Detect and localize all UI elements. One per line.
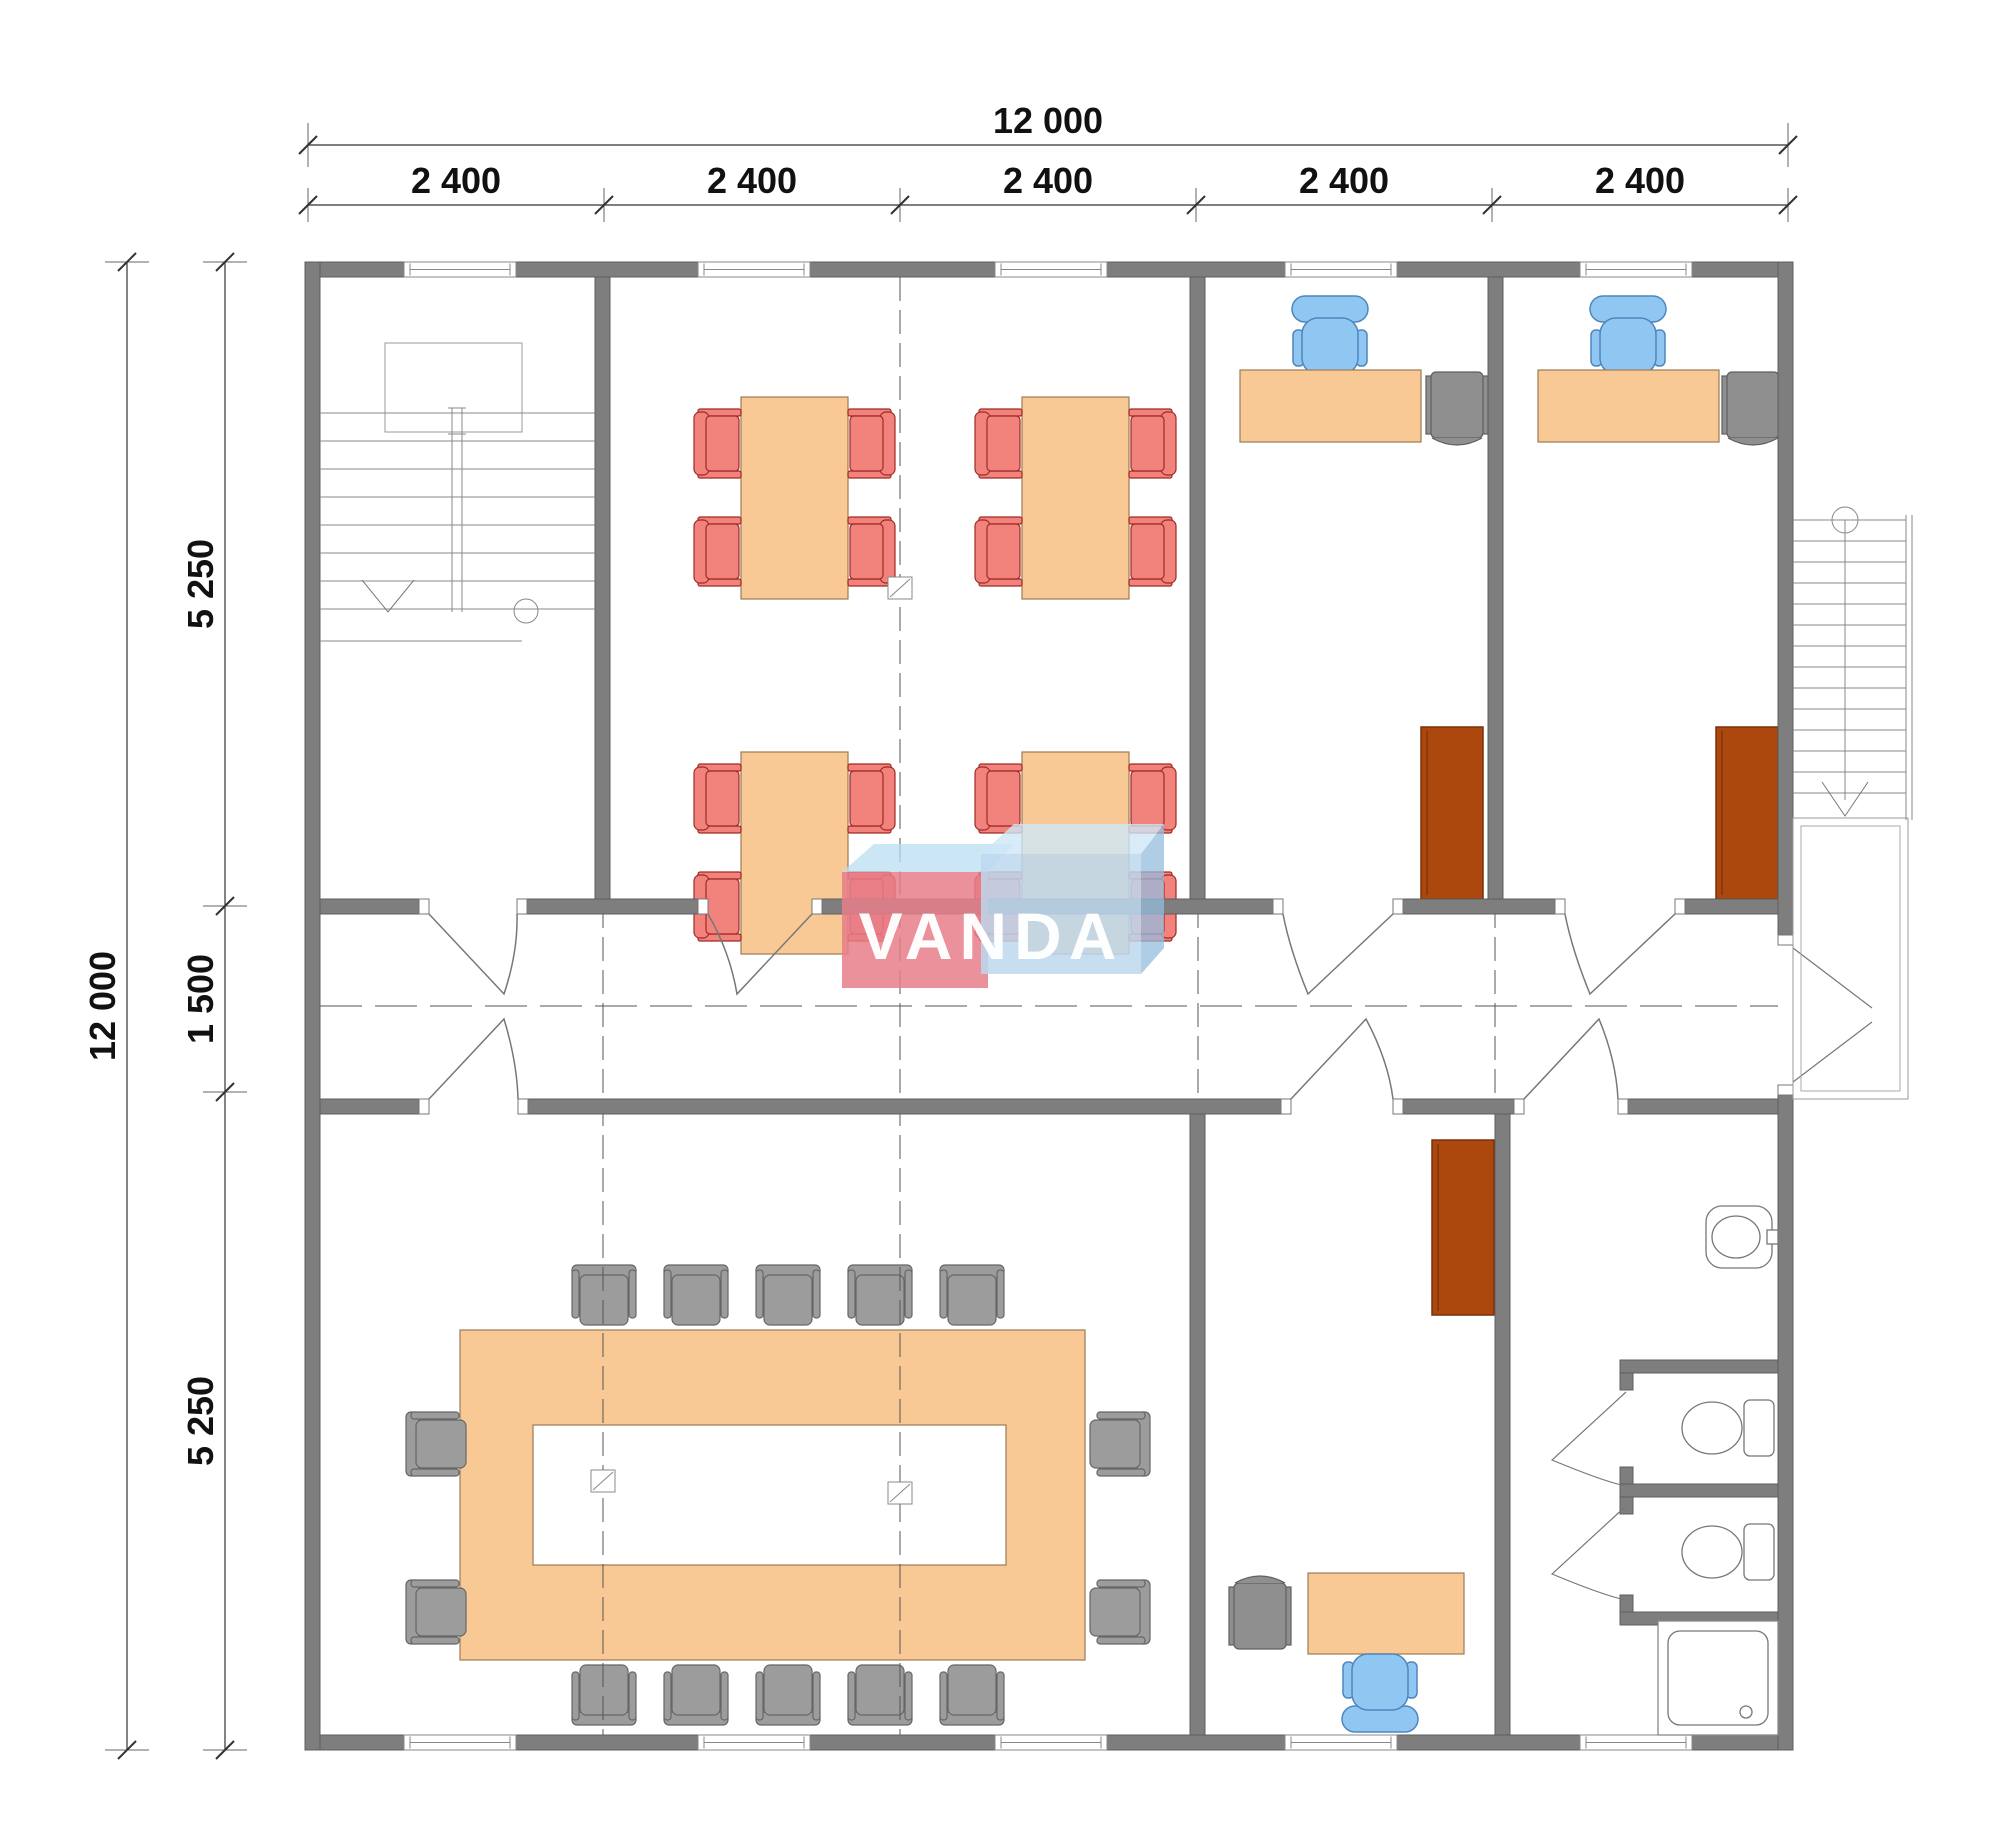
red-chair xyxy=(975,764,1022,833)
gray-guest-chair xyxy=(1426,372,1488,445)
toilet-bowl xyxy=(1682,1526,1742,1578)
window xyxy=(1285,1735,1397,1750)
office-b-furniture xyxy=(1538,296,1784,899)
dim-label-5250: 5 250 xyxy=(180,539,221,629)
shower-drain xyxy=(1740,1706,1752,1718)
sink-faucet xyxy=(1767,1230,1778,1244)
dim-label-1500: 1 500 xyxy=(180,954,221,1044)
gray-chair xyxy=(406,1580,466,1644)
door-stall-2 xyxy=(1552,1506,1626,1600)
corridor-wall xyxy=(320,1099,429,1114)
column-symbol xyxy=(888,577,912,599)
window xyxy=(698,262,810,277)
toilet-bowl xyxy=(1682,1402,1742,1454)
desk xyxy=(1308,1573,1464,1654)
bathroom-fixtures xyxy=(1658,1206,1778,1735)
stall-wall xyxy=(1620,1484,1778,1497)
entrance-landing-inner xyxy=(1801,826,1900,1091)
window xyxy=(698,1735,810,1750)
meeting-table xyxy=(741,397,848,599)
partition-conference-office xyxy=(1190,1114,1205,1735)
partition-office-bathroom xyxy=(1495,1114,1510,1735)
dim-label-2400: 2 400 xyxy=(707,160,797,201)
conference-room-furniture xyxy=(406,1265,1150,1725)
desk xyxy=(1240,370,1421,442)
gray-chair xyxy=(664,1265,728,1325)
gray-chair xyxy=(940,1665,1004,1725)
stair-direction-arrow xyxy=(362,580,414,612)
external-staircase xyxy=(1793,507,1912,1099)
stall-wall-stub xyxy=(1620,1595,1633,1612)
entrance-landing xyxy=(1793,818,1908,1099)
dim-label-2400: 2 400 xyxy=(1299,160,1389,201)
dim-label-2400: 2 400 xyxy=(1595,160,1685,201)
gray-chair xyxy=(1090,1412,1150,1476)
meeting-table xyxy=(1022,397,1129,599)
stair-start-circle xyxy=(514,599,538,623)
dim-label-left-total: 12 000 xyxy=(82,951,123,1061)
partition-officea-officeb xyxy=(1488,277,1503,899)
gray-chair xyxy=(756,1665,820,1725)
wardrobe xyxy=(1432,1140,1494,1315)
door-stair-room xyxy=(429,914,517,994)
door-office-a xyxy=(1283,914,1393,994)
gray-chair xyxy=(1090,1580,1150,1644)
window xyxy=(995,1735,1107,1750)
red-chair xyxy=(975,517,1022,586)
window xyxy=(1580,1735,1692,1750)
red-chair xyxy=(848,409,895,478)
dim-label-top-total: 12 000 xyxy=(993,100,1103,141)
exterior-wall-left xyxy=(305,262,320,1750)
window xyxy=(995,262,1107,277)
red-chair xyxy=(1129,517,1176,586)
bottom-office-furniture xyxy=(1229,1140,1494,1732)
gray-guest-chair xyxy=(1722,372,1784,445)
red-chair xyxy=(694,764,741,833)
gray-armchair xyxy=(1229,1576,1291,1649)
red-chair xyxy=(694,409,741,478)
corridor-wall xyxy=(1393,1099,1524,1114)
toilet-tank xyxy=(1744,1400,1774,1456)
meeting-table xyxy=(741,752,848,954)
stair-landing-outline xyxy=(385,343,522,432)
blue-office-chair xyxy=(1342,1654,1418,1732)
toilet-tank xyxy=(1744,1524,1774,1580)
red-chair xyxy=(975,409,1022,478)
gray-chair xyxy=(848,1665,912,1725)
corridor-wall xyxy=(1393,899,1565,914)
blue-office-chair xyxy=(1590,296,1666,374)
vanda-logo: VANDA xyxy=(842,824,1164,988)
door-office-b xyxy=(1565,914,1675,994)
partition-meeting-officea xyxy=(1190,277,1205,899)
gray-chair xyxy=(572,1265,636,1325)
corridor-wall xyxy=(518,1099,1291,1114)
window xyxy=(404,262,516,277)
corridor-wall xyxy=(320,899,429,914)
stall-wall-stub xyxy=(1620,1467,1633,1484)
blue-office-chair xyxy=(1292,296,1368,374)
door-stall-1 xyxy=(1552,1392,1626,1486)
column-symbol xyxy=(591,1470,615,1492)
red-chair xyxy=(1129,764,1176,833)
conference-table-opening xyxy=(533,1425,1006,1565)
red-chair xyxy=(848,764,895,833)
door-exterior xyxy=(1793,948,1872,1082)
column-symbol xyxy=(888,1482,912,1504)
floor-plan-canvas: 12 000 2 400 2 400 2 400 2 400 2 400 12 … xyxy=(0,0,2000,1848)
door-bathroom xyxy=(1524,1019,1618,1099)
window xyxy=(1285,262,1397,277)
corridor-wall xyxy=(517,899,708,914)
gray-chair xyxy=(572,1665,636,1725)
gray-chair xyxy=(406,1412,466,1476)
dim-label-5250: 5 250 xyxy=(180,1376,221,1466)
stall-wall-stub xyxy=(1620,1373,1633,1390)
internal-staircase xyxy=(320,343,595,641)
gray-chair xyxy=(940,1265,1004,1325)
stall-wall-stub xyxy=(1620,1497,1633,1514)
corridor-wall xyxy=(1618,1099,1778,1114)
gray-chair xyxy=(848,1265,912,1325)
office-a-furniture xyxy=(1240,296,1488,899)
wardrobe xyxy=(1421,727,1483,899)
red-chair xyxy=(1129,409,1176,478)
window xyxy=(1580,262,1692,277)
sink-basin xyxy=(1712,1216,1760,1258)
dim-label-2400: 2 400 xyxy=(1003,160,1093,201)
exterior-wall-right-upper xyxy=(1778,262,1793,945)
partition-stair-meeting xyxy=(595,277,610,899)
dim-label-2400: 2 400 xyxy=(411,160,501,201)
stall-wall xyxy=(1620,1360,1778,1373)
shower-tray-inner xyxy=(1668,1631,1768,1725)
window xyxy=(404,1735,516,1750)
red-chair xyxy=(694,517,741,586)
corridor-wall xyxy=(1675,899,1778,914)
logo-text: VANDA xyxy=(859,899,1124,973)
wardrobe xyxy=(1716,727,1778,899)
door-conference-room xyxy=(429,1019,518,1099)
red-chair xyxy=(848,517,895,586)
gray-chair xyxy=(756,1265,820,1325)
door-bottom-office xyxy=(1291,1019,1393,1099)
desk xyxy=(1538,370,1719,442)
gray-chair xyxy=(664,1665,728,1725)
exterior-wall-right-lower xyxy=(1778,1085,1793,1750)
